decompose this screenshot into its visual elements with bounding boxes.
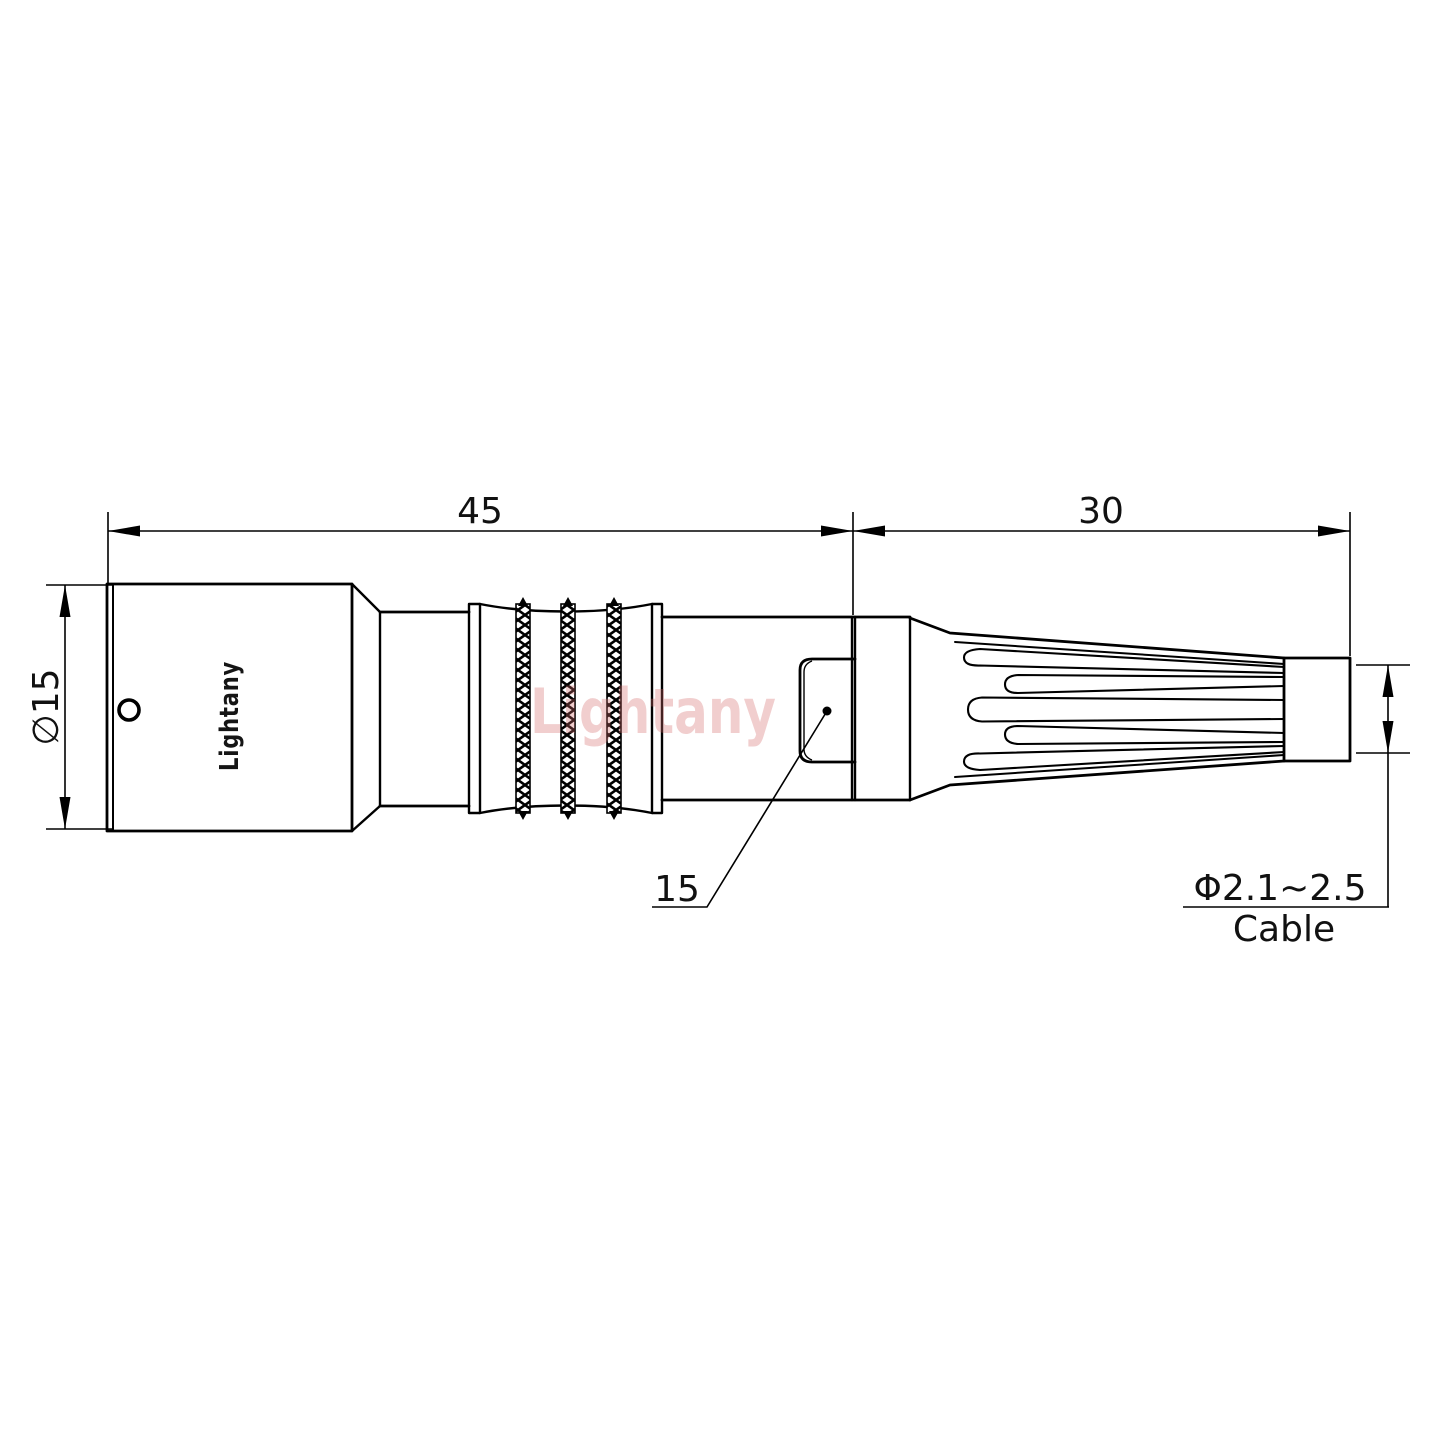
strain-relief-center-slot: [968, 698, 1284, 722]
technical-drawing-page: Lightany Lightany 45 30 ∅15 15 Φ2.1~2.5 …: [0, 0, 1440, 1440]
strain-relief-fin: [1005, 675, 1284, 693]
dim-arrow-up-icon: [60, 585, 71, 617]
dim-arrow-left-icon: [108, 526, 140, 537]
body-chamfer: [352, 584, 380, 831]
knurl-band: [516, 597, 530, 820]
dim-arrow-down-icon: [60, 797, 71, 829]
dim-arrow-down-icon: [1383, 721, 1394, 753]
dim-arrow-up-icon: [1383, 665, 1394, 697]
cable-end-cap: [1284, 658, 1350, 761]
dim-arrow-right-icon: [821, 526, 853, 537]
cable-label: Cable: [1233, 909, 1335, 950]
watermark-text: Lightany: [530, 675, 776, 748]
dim-30-label: 30: [1078, 491, 1124, 532]
knurl-left-collar: [469, 604, 480, 813]
body-hole: [119, 700, 139, 720]
extension-lines-cable: [1356, 665, 1410, 753]
cable-dia-label: Φ2.1~2.5: [1193, 868, 1366, 909]
dim-arrow-right-icon: [1318, 526, 1350, 537]
dim-arrow-left-icon: [853, 526, 885, 537]
neck: [380, 612, 469, 806]
sleeve-edges: [852, 617, 910, 800]
strain-relief-fin: [1005, 726, 1284, 744]
dia-15-label: ∅15: [26, 668, 67, 745]
connector-drawing: Lightany Lightany 45 30 ∅15 15 Φ2.1~2.5 …: [0, 0, 1440, 1440]
dim-45-label: 45: [457, 491, 503, 532]
brand-text: Lightany: [215, 661, 245, 771]
latch-leader-label: 15: [654, 869, 700, 910]
